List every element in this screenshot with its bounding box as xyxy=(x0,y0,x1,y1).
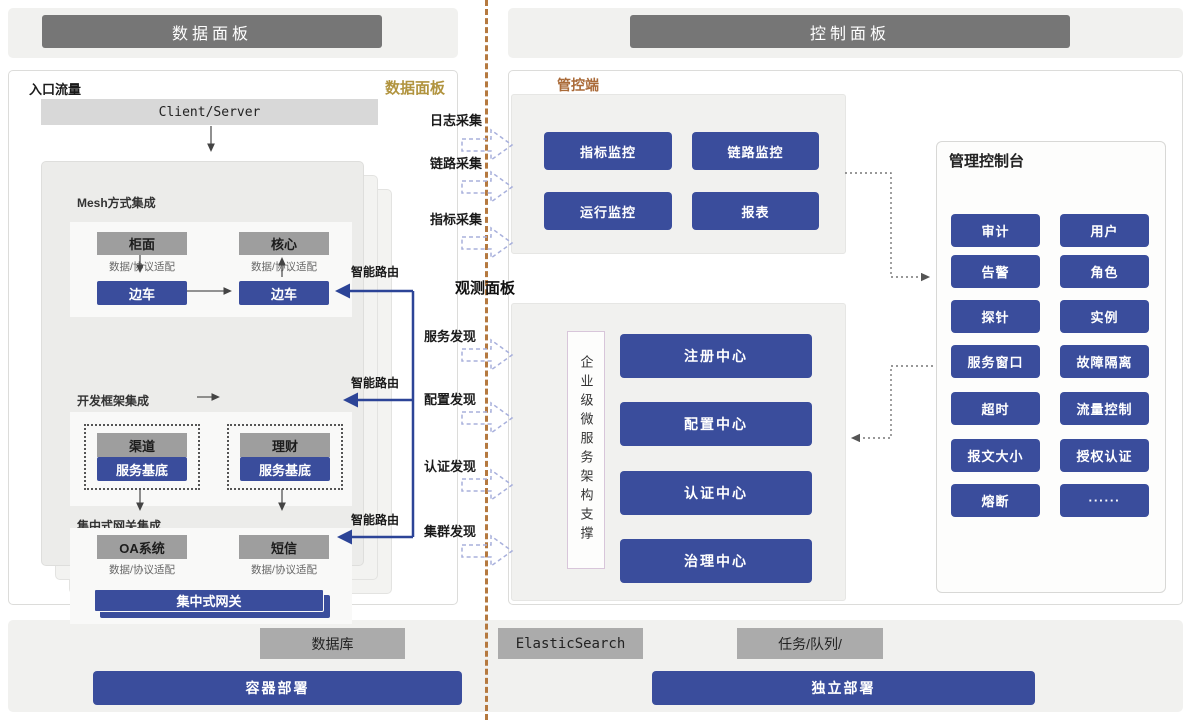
control-panel-header: 控制面板 xyxy=(630,15,1070,48)
data-panel-header-strip: 数据面板 xyxy=(8,8,458,58)
core-node: 核心 xyxy=(239,232,329,255)
sidecar-node-right: 边车 xyxy=(239,281,329,305)
runtime-monitor-node: 运行监控 xyxy=(544,192,672,230)
gateway-adapter-label-right: 数据/协议适配 xyxy=(239,562,329,577)
gateway-bar: 集中式网关 xyxy=(94,589,324,612)
console-item-label: ······ xyxy=(1089,493,1121,508)
oa-system-node: OA系统 xyxy=(97,535,187,559)
console-item-label: 角色 xyxy=(1090,262,1118,281)
console-item-service-window: 服务窗口 xyxy=(951,345,1040,378)
sidecar-label-left: 边车 xyxy=(129,284,155,303)
framework-section-box: 渠道 服务基底 理财 服务基底 xyxy=(70,412,352,506)
config-discovery-label: 配置发现 xyxy=(424,389,476,408)
sms-label: 短信 xyxy=(271,538,297,557)
registry-center-node: 注册中心 xyxy=(620,334,812,378)
console-item-label: 故障隔离 xyxy=(1076,352,1132,371)
mesh-section-title: Mesh方式集成 xyxy=(77,194,156,211)
console-item-label: 用户 xyxy=(1090,221,1118,240)
auth-center-label: 认证中心 xyxy=(684,483,748,503)
gateway-adapter-label-left: 数据/协议适配 xyxy=(97,562,187,577)
smart-route-label-2: 智能路由 xyxy=(351,374,399,391)
task-queue-node: 任务/队列/ xyxy=(737,628,883,659)
auth-center-node: 认证中心 xyxy=(620,471,812,515)
control-panel-header-strip: 控制面板 xyxy=(508,8,1183,58)
counter-node: 柜面 xyxy=(97,232,187,255)
metric-monitor-node: 指标监控 xyxy=(544,132,672,170)
smart-route-label-3: 智能路由 xyxy=(351,511,399,528)
console-item-audit: 审计 xyxy=(951,214,1040,247)
container-deploy-label: 容器部署 xyxy=(246,678,310,698)
data-plane-corner-label: 数据面板 xyxy=(385,77,445,98)
smart-route-label-1: 智能路由 xyxy=(351,263,399,280)
sidecar-node-left: 边车 xyxy=(97,281,187,305)
monitoring-panel: 指标监控 链路监控 运行监控 报表 xyxy=(511,94,846,254)
config-center-label: 配置中心 xyxy=(684,414,748,434)
console-item-label: 服务窗口 xyxy=(967,352,1023,371)
config-center-node: 配置中心 xyxy=(620,402,812,446)
console-item-fault-isolation: 故障隔离 xyxy=(1060,345,1149,378)
log-collect-label: 日志采集 xyxy=(430,110,482,129)
task-queue-label: 任务/队列/ xyxy=(778,634,842,654)
elasticsearch-node: ElasticSearch xyxy=(498,628,643,659)
wealth-label: 理财 xyxy=(272,436,298,455)
client-server-node: Client/Server xyxy=(41,99,378,125)
auth-discovery-label: 认证发现 xyxy=(424,456,476,475)
trace-collect-label: 链路采集 xyxy=(430,153,482,172)
console-item-more: ······ xyxy=(1060,484,1149,517)
registry-center-label: 注册中心 xyxy=(684,346,748,366)
gateway-bar-label: 集中式网关 xyxy=(176,591,241,610)
service-base-label-left: 服务基底 xyxy=(116,460,168,479)
mesh-section-box: 柜面 核心 数据/协议适配 数据/协议适配 边车 边车 xyxy=(70,222,352,317)
console-item-alert: 告警 xyxy=(951,255,1040,288)
elasticsearch-label: ElasticSearch xyxy=(516,636,626,652)
panel-divider-line xyxy=(485,0,488,720)
console-item-message-size: 报文大小 xyxy=(951,439,1040,472)
runtime-monitor-label: 运行监控 xyxy=(580,202,636,221)
adapter-label-left: 数据/协议适配 xyxy=(97,259,187,274)
gateway-section-box: OA系统 短信 数据/协议适配 数据/协议适配 集中式网关 xyxy=(70,528,352,624)
console-item-traffic-control: 流量控制 xyxy=(1060,392,1149,425)
data-plane-panel: 入口流量 数据面板 Client/Server Mesh方式集成 柜面 核心 数… xyxy=(8,70,458,605)
service-base-node-right: 服务基底 xyxy=(240,457,330,481)
observe-panel-title: 观测面板 xyxy=(455,277,515,298)
console-item-authorization: 授权认证 xyxy=(1060,439,1149,472)
client-server-label: Client/Server xyxy=(159,105,261,120)
trace-monitor-node: 链路监控 xyxy=(692,132,819,170)
metric-monitor-label: 指标监控 xyxy=(580,142,636,161)
channel-label: 渠道 xyxy=(129,436,155,455)
console-item-role: 角色 xyxy=(1060,255,1149,288)
database-label: 数据库 xyxy=(312,634,354,654)
console-item-label: 流量控制 xyxy=(1076,399,1132,418)
console-item-label: 告警 xyxy=(981,262,1009,281)
console-item-circuit-break: 熔断 xyxy=(951,484,1040,517)
metric-collect-label: 指标采集 xyxy=(430,209,482,228)
sidecar-label-right: 边车 xyxy=(271,284,297,303)
console-item-label: 实例 xyxy=(1090,307,1118,326)
data-panel-header: 数据面板 xyxy=(42,15,382,48)
entry-traffic-label: 入口流量 xyxy=(29,79,81,98)
management-console-title: 管理控制台 xyxy=(949,150,1024,171)
service-base-node-left: 服务基底 xyxy=(97,457,187,481)
report-node: 报表 xyxy=(692,192,819,230)
console-item-label: 授权认证 xyxy=(1076,446,1132,465)
service-base-label-right: 服务基底 xyxy=(259,460,311,479)
observe-panel: 企业级微服务架构支撑 注册中心 配置中心 认证中心 治理中心 xyxy=(511,303,846,601)
console-item-user: 用户 xyxy=(1060,214,1149,247)
governance-center-label: 治理中心 xyxy=(684,551,748,571)
microservice-support-label: 企业级微服务架构支撑 xyxy=(577,355,596,545)
container-deploy-bar: 容器部署 xyxy=(93,671,462,705)
console-item-timeout: 超时 xyxy=(951,392,1040,425)
console-item-label: 探针 xyxy=(981,307,1009,326)
counter-label: 柜面 xyxy=(129,234,155,253)
oa-system-label: OA系统 xyxy=(119,538,165,557)
control-plane-panel: 管控端 指标监控 链路监控 运行监控 报表 企业级微服务架构支撑 注册中心 xyxy=(508,70,1183,605)
console-item-instance: 实例 xyxy=(1060,300,1149,333)
framework-section-title: 开发框架集成 xyxy=(77,392,149,409)
database-node: 数据库 xyxy=(260,628,405,659)
console-item-label: 报文大小 xyxy=(967,446,1023,465)
sms-node: 短信 xyxy=(239,535,329,559)
standalone-deploy-bar: 独立部署 xyxy=(652,671,1035,705)
integration-group-panel: Mesh方式集成 柜面 核心 数据/协议适配 数据/协议适配 边车 边车 开发框… xyxy=(41,161,364,566)
core-label: 核心 xyxy=(271,234,297,253)
architecture-diagram: 数据面板 控制面板 数据库 ElasticSearch 任务/队列/ 容器部署 … xyxy=(0,0,1189,720)
console-item-label: 超时 xyxy=(981,399,1009,418)
standalone-deploy-label: 独立部署 xyxy=(812,678,876,698)
console-item-label: 审计 xyxy=(981,221,1009,240)
trace-monitor-label: 链路监控 xyxy=(727,142,783,161)
infrastructure-strip: 数据库 ElasticSearch 任务/队列/ 容器部署 独立部署 xyxy=(8,620,1183,712)
adapter-label-right: 数据/协议适配 xyxy=(239,259,329,274)
management-console-panel: 管理控制台 审计 用户 告警 角色 探针 实例 服务窗口 故障隔离 超时 流量控… xyxy=(936,141,1166,593)
governance-center-node: 治理中心 xyxy=(620,539,812,583)
control-panel-header-label: 控制面板 xyxy=(810,20,890,44)
console-item-probe: 探针 xyxy=(951,300,1040,333)
manage-end-label: 管控端 xyxy=(557,75,599,95)
channel-node: 渠道 xyxy=(97,433,187,457)
wealth-node: 理财 xyxy=(240,433,330,457)
console-item-label: 熔断 xyxy=(981,491,1009,510)
cluster-discovery-label: 集群发现 xyxy=(424,521,476,540)
service-discovery-label: 服务发现 xyxy=(424,326,476,345)
microservice-support-box: 企业级微服务架构支撑 xyxy=(567,331,605,569)
data-panel-header-label: 数据面板 xyxy=(172,20,252,44)
report-label: 报表 xyxy=(741,202,769,221)
